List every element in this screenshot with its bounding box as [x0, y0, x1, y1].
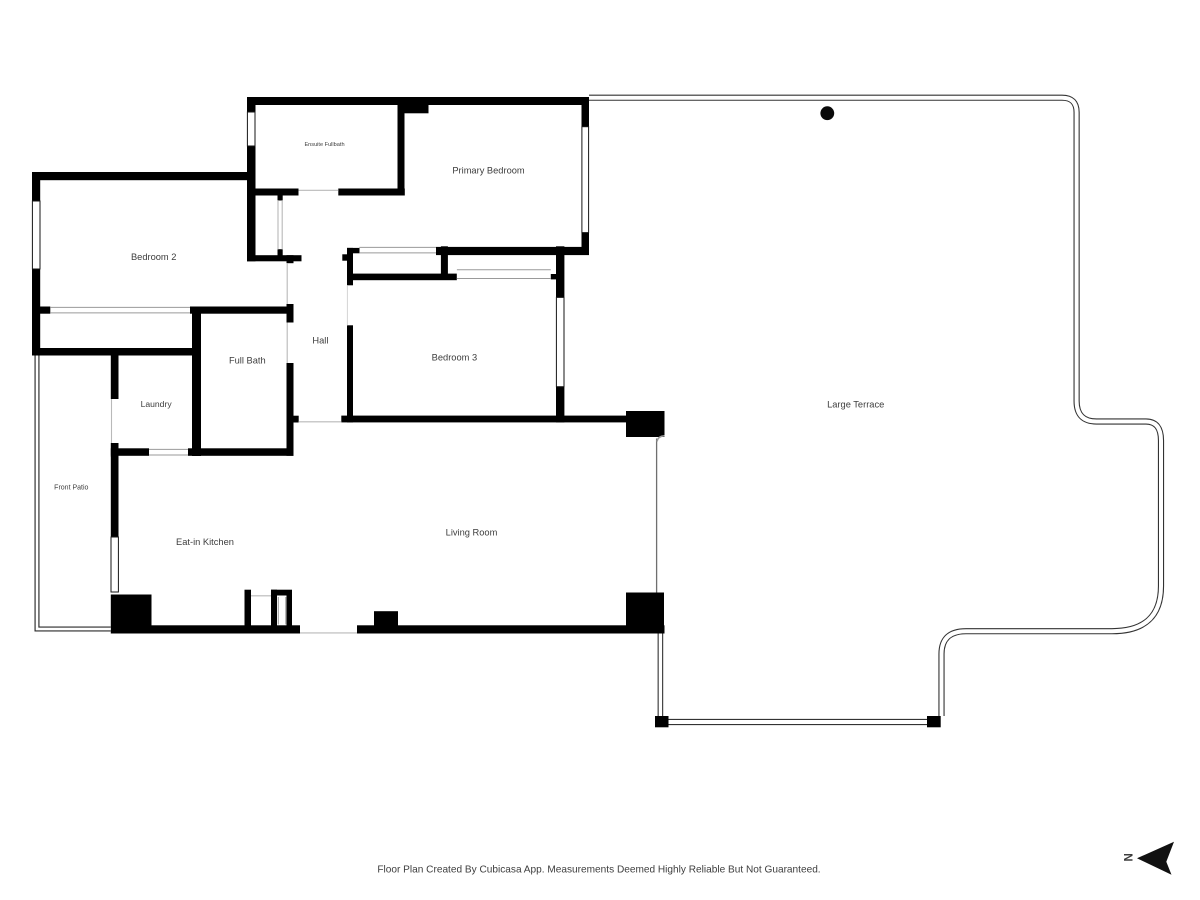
svg-text:Bedroom 2: Bedroom 2 [131, 252, 176, 262]
svg-text:Bedroom 3: Bedroom 3 [432, 353, 477, 363]
svg-text:Ensuite Fullbath: Ensuite Fullbath [304, 142, 344, 148]
svg-text:N: N [1124, 853, 1136, 861]
svg-text:Large Terrace: Large Terrace [827, 399, 884, 409]
svg-text:Primary Bedroom: Primary Bedroom [452, 166, 525, 176]
svg-text:Front Patio: Front Patio [54, 485, 88, 492]
svg-text:Living Room: Living Room [446, 528, 498, 538]
svg-text:Hall: Hall [312, 335, 328, 345]
svg-text:Full Bath: Full Bath [229, 355, 266, 365]
svg-text:Eat-in Kitchen: Eat-in Kitchen [176, 537, 234, 547]
svg-text:Floor Plan Created By Cubicasa: Floor Plan Created By Cubicasa App. Meas… [377, 865, 820, 876]
svg-text:Laundry: Laundry [141, 399, 173, 409]
